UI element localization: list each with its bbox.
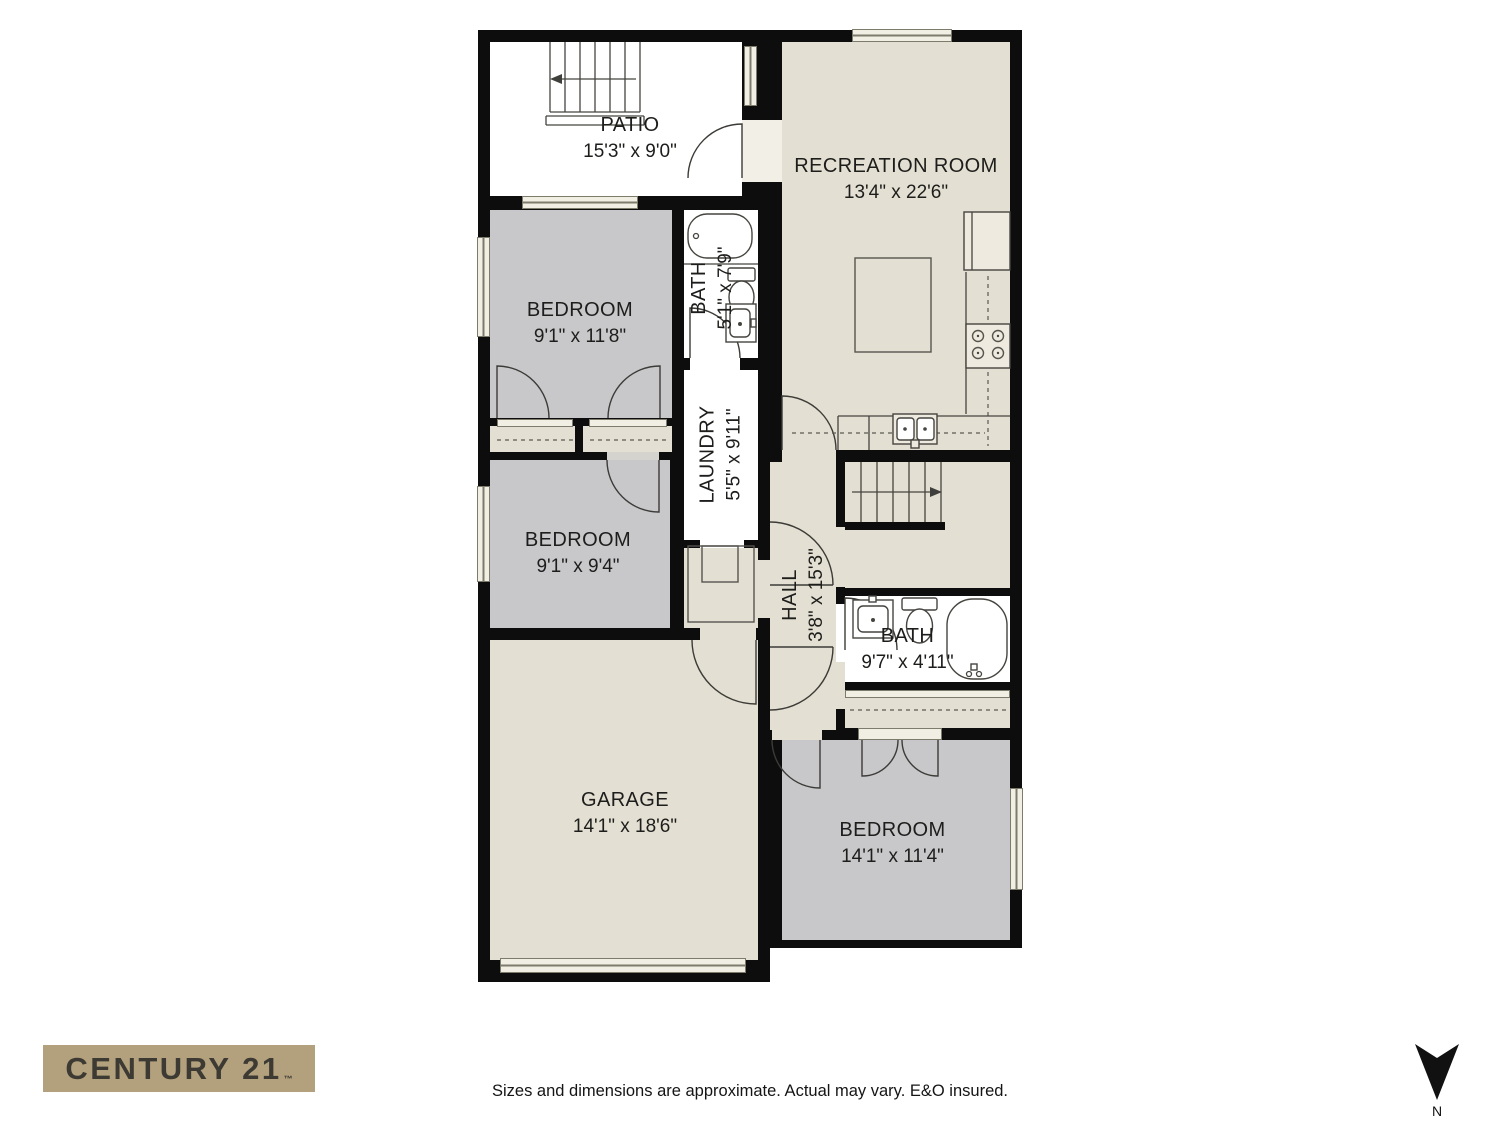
room-dims: 14'1" x 11'4" (841, 846, 944, 868)
label-bath1: BATH 5'1" x 7'9" (686, 208, 738, 368)
room-name: GARAGE (581, 789, 669, 812)
label-bath2: BATH 9'7" x 4'11" (820, 618, 995, 680)
window-bedroom3-right (1010, 788, 1023, 890)
room-name: PATIO (600, 114, 659, 137)
room-utility-floor (684, 548, 758, 628)
bedroom3-closet-band (858, 728, 942, 740)
closet1-door-band (497, 419, 573, 427)
floorplan-page: PATIO 15'3" x 9'0" RECREATION ROOM 13'4"… (0, 0, 1500, 1125)
room-name: BEDROOM (525, 529, 631, 552)
opening-garage (700, 628, 756, 640)
closet2-floor (583, 426, 672, 452)
north-label: N (1432, 1103, 1442, 1119)
room-name: BEDROOM (527, 299, 633, 322)
room-dims: 5'5" x 9'11" (724, 408, 746, 500)
north-arrow-icon: N (1408, 1042, 1468, 1122)
room-name: BATH (688, 261, 711, 314)
window-patio-bedroom1 (522, 196, 638, 209)
room-dims: 14'1" x 18'6" (573, 816, 677, 838)
garage-door (500, 958, 746, 973)
opening-rec-hall (782, 450, 836, 462)
room-name: BEDROOM (839, 819, 945, 842)
room-name: HALL (779, 569, 802, 621)
room-dims: 13'4" x 22'6" (844, 182, 948, 204)
label-garage: GARAGE 14'1" x 18'6" (530, 782, 720, 844)
disclaimer-text: Sizes and dimensions are approximate. Ac… (0, 1082, 1500, 1101)
room-dims: 9'1" x 11'8" (534, 326, 626, 348)
label-laundry: LAUNDRY 5'5" x 9'11" (694, 365, 749, 545)
label-recreation: RECREATION ROOM 13'4" x 22'6" (783, 148, 1009, 210)
label-bedroom1: BEDROOM 9'1" x 11'8" (485, 292, 675, 354)
landing-lower-floor (845, 530, 1010, 588)
opening-bedroom2 (607, 452, 659, 460)
label-bedroom3: BEDROOM 14'1" x 11'4" (785, 812, 1000, 874)
room-dims: 9'7" x 4'11" (861, 652, 953, 674)
window-patio-rec (744, 46, 757, 106)
window-recreation-top (852, 29, 952, 42)
room-name: LAUNDRY (697, 406, 720, 504)
closet1-floor (490, 426, 575, 452)
label-patio: PATIO 15'3" x 9'0" (540, 108, 720, 168)
opening-bedroom3-entry (772, 730, 822, 740)
room-dims: 9'1" x 9'4" (536, 556, 619, 578)
stairwell-floor (845, 462, 945, 522)
opening-hall-landing-top (836, 527, 845, 587)
room-name: RECREATION ROOM (794, 155, 997, 178)
room-dims: 15'3" x 9'0" (583, 141, 677, 163)
room-dims: 5'1" x 7'9" (715, 246, 737, 329)
opening-patio-rec (742, 120, 782, 182)
label-bedroom2: BEDROOM 9'1" x 9'4" (483, 522, 673, 584)
room-name: BATH (881, 625, 934, 648)
closet2-door-band (589, 419, 667, 427)
closet3-slider-band (845, 690, 1010, 698)
opening-utility-hall (758, 560, 770, 618)
room-recreation-floor (782, 42, 1010, 450)
